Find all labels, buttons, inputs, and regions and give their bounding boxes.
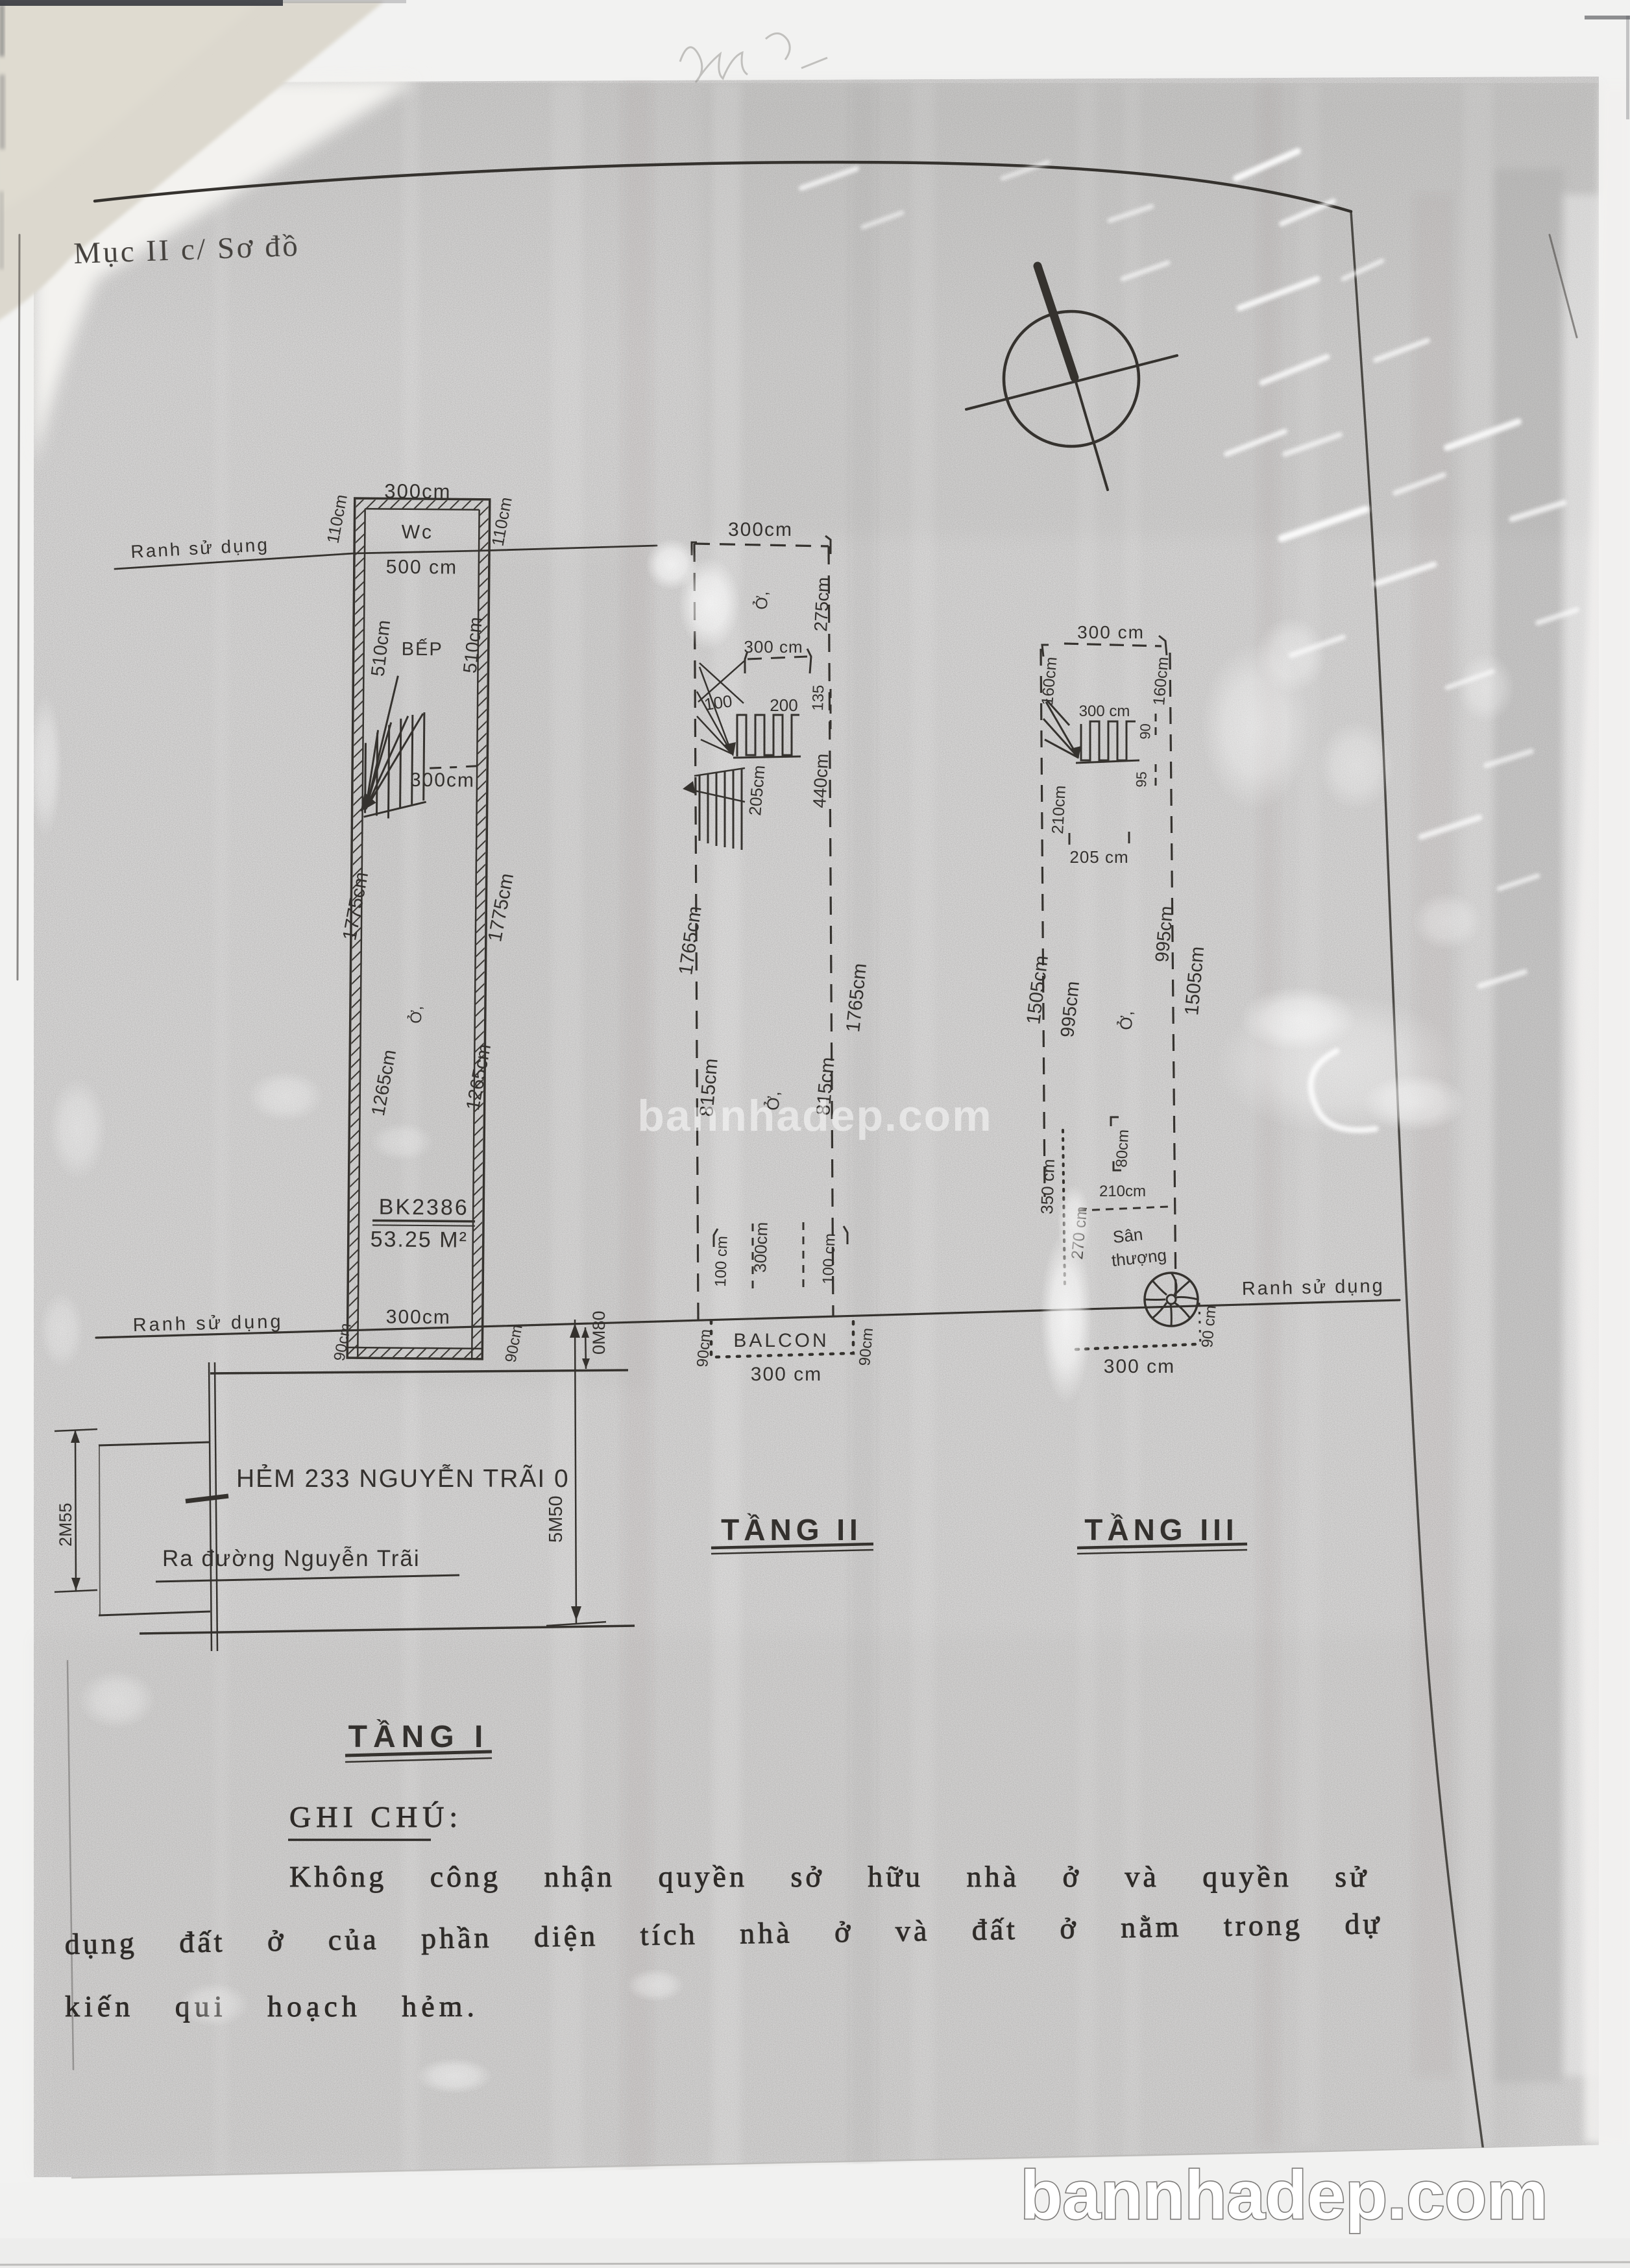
svg-text:5M50: 5M50 [546,1495,566,1543]
svg-text:500 cm: 500 cm [386,556,458,578]
svg-text:100 cm: 100 cm [712,1236,731,1288]
svg-text:210cm: 210cm [1049,785,1069,834]
svg-text:Ở,: Ở, [1115,1011,1136,1031]
svg-text:TẦNG III: TẦNG III [1084,1513,1238,1547]
svg-text:300 cm: 300 cm [1077,622,1145,642]
svg-text:90: 90 [1137,723,1154,740]
svg-text:53.25 M²: 53.25 M² [371,1227,468,1252]
svg-text:TẦNG II: TẦNG II [721,1513,862,1547]
svg-text:TẦNG I: TẦNG I [348,1719,489,1754]
svg-text:200: 200 [770,695,797,715]
svg-text:300 cm: 300 cm [1104,1356,1175,1377]
svg-text:440cm: 440cm [809,753,832,809]
svg-text:kiến qui hoạch hẻm.: kiến qui hoạch hẻm. [65,1990,479,2023]
svg-text:275cm: 275cm [810,577,833,633]
svg-text:Ranh sử dụng: Ranh sử dụng [1241,1275,1384,1299]
svg-text:210cm: 210cm [1099,1183,1146,1200]
svg-text:300cm: 300cm [386,1307,451,1329]
svg-text:350 cm: 350 cm [1037,1159,1058,1214]
svg-text:90 cm: 90 cm [1198,1305,1220,1348]
svg-text:bannhadep.com: bannhadep.com [637,1091,992,1140]
svg-text:Ở,: Ở, [406,1006,426,1024]
svg-text:300 cm: 300 cm [1079,703,1130,720]
svg-text:80cm: 80cm [1113,1129,1132,1168]
svg-text:2M55: 2M55 [56,1502,75,1547]
svg-text:300 cm: 300 cm [744,637,803,657]
svg-text:300 cm: 300 cm [751,1364,822,1385]
svg-text:Sân: Sân [1112,1224,1143,1247]
svg-text:Ra đường Nguyễn Trãi: Ra đường Nguyễn Trãi [162,1546,420,1571]
svg-text:BALCON: BALCON [733,1330,829,1351]
svg-text:300cm: 300cm [728,519,793,540]
svg-text:135: 135 [809,684,827,711]
svg-text:300cm: 300cm [410,769,475,791]
svg-text:GHI CHÚ:: GHI CHÚ: [289,1800,463,1833]
svg-text:Ranh sử dụng: Ranh sử dụng [132,1311,284,1336]
svg-text:Ở,: Ở, [751,591,772,610]
svg-text:90cm: 90cm [856,1327,877,1367]
svg-text:300cm: 300cm [750,1222,772,1273]
svg-text:Wc: Wc [402,522,434,543]
svg-text:100 cm: 100 cm [820,1233,839,1285]
svg-text:HẺM 233 NGUYỄN TRÃI 0: HẺM 233 NGUYỄN TRÃI 0 [236,1464,570,1493]
svg-text:BẾP: BẾP [402,638,443,660]
svg-text:bannhadep.com: bannhadep.com [1021,2157,1548,2234]
svg-text:Không công nhận quyền sở hữu n: Không công nhận quyền sở hữu nhà ở và qu… [289,1860,1369,1893]
svg-text:90cm: 90cm [694,1329,714,1368]
svg-text:300cm: 300cm [384,479,451,503]
svg-text:205 cm: 205 cm [1069,847,1128,867]
svg-text:BK2386: BK2386 [379,1194,469,1220]
svg-text:95: 95 [1133,771,1150,788]
svg-text:100: 100 [703,691,733,714]
svg-text:0M80: 0M80 [589,1310,609,1355]
